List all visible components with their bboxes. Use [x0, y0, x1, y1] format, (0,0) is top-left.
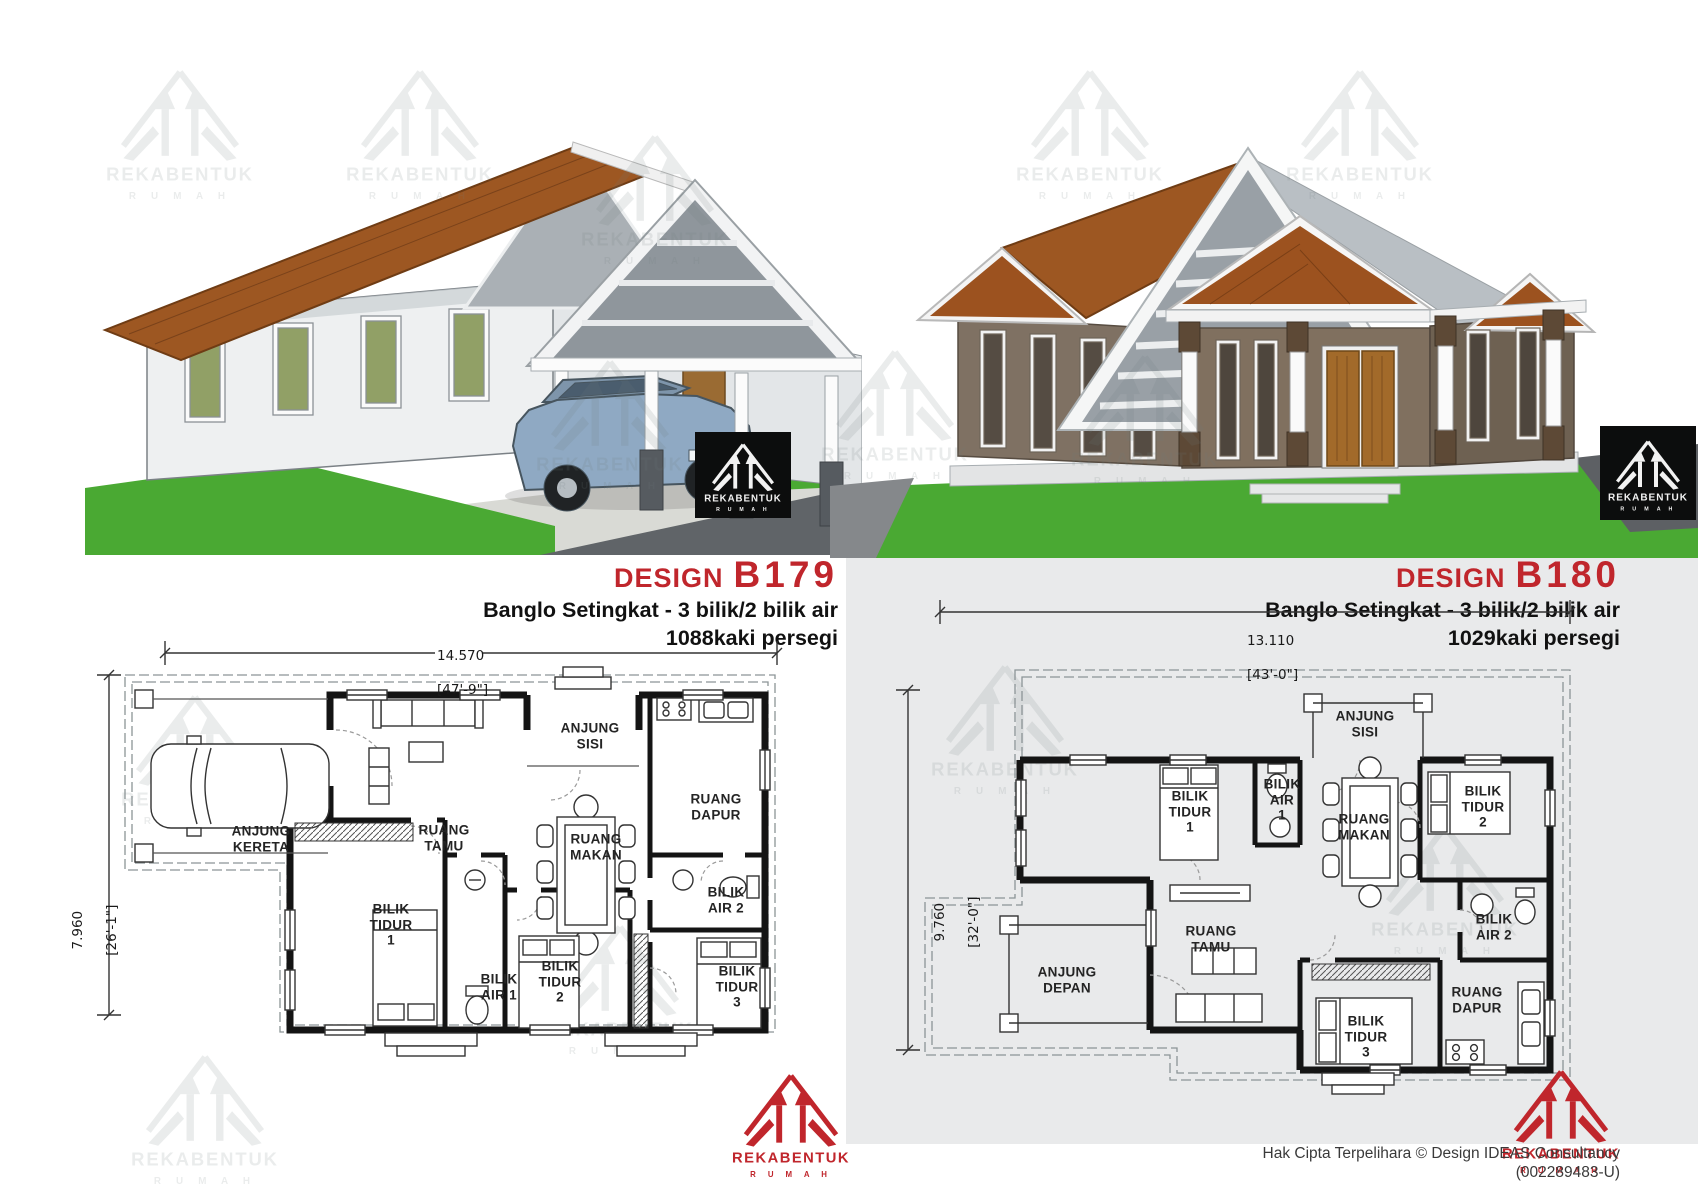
- b180-plate-logo: [1608, 429, 1688, 517]
- b179-dim-left-m: 7.960: [70, 885, 87, 975]
- b179-dim-top-ft: [47'-9"]: [437, 682, 488, 699]
- brand-watermark: [1285, 50, 1435, 210]
- b179-kitchen-fixtures: [657, 698, 753, 722]
- b179-dim-top: 14.570 [47'-9"]: [437, 631, 488, 715]
- room-label-b180-bilik-tidur-2: BILIK TIDUR 2: [1462, 784, 1505, 831]
- b179-footer-logo: [732, 1058, 850, 1186]
- brand-watermark: [1070, 335, 1220, 495]
- b179-wardrobe: [295, 823, 413, 841]
- room-label-b180-ruang-dapur: RUANG DAPUR: [1452, 984, 1503, 1015]
- b179-steps: [385, 1033, 697, 1056]
- brand-watermark: [105, 50, 255, 210]
- b180-front-door: [1322, 346, 1398, 468]
- poster-canvas: REKABENTUK R U M A H: [0, 0, 1698, 1200]
- b179-dim-left: 7.960 [26'-1"]: [53, 885, 137, 975]
- b179-dim-left-ft: [26'-1"]: [103, 885, 120, 975]
- brand-watermark: [580, 115, 730, 275]
- brand-watermark: [535, 340, 685, 500]
- room-label-b180-ruang-makan: RUANG MAKAN: [1338, 811, 1390, 842]
- room-label-b180-anjung-depan: ANJUNG DEPAN: [1038, 964, 1097, 995]
- b179-dim-top-m: 14.570: [437, 648, 488, 665]
- b179-plan-car: [151, 736, 329, 836]
- room-label-ruang-dapur: RUANG DAPUR: [691, 791, 742, 822]
- b180-dim-top-ft: [43'-0"]: [1247, 667, 1298, 684]
- copyright-notice: Hak Cipta Terpelihara © Design IDEAS Con…: [1060, 1144, 1620, 1183]
- room-label-ruang-tamu: RUANG TAMU: [419, 822, 470, 853]
- copyright-line1: Hak Cipta Terpelihara © Design IDEAS Con…: [1060, 1144, 1620, 1163]
- b179-brand-plate: [695, 432, 791, 518]
- room-label-anjung-kereta: ANJUNG KERETA: [232, 823, 291, 854]
- room-label-anjung-sisi: ANJUNG SISI: [561, 720, 620, 751]
- b179-plate-logo: [704, 433, 782, 517]
- brand-watermark: [1015, 50, 1165, 210]
- room-label-bilik-air-2: BILIK AIR 2: [708, 884, 745, 915]
- b180-dim-top-m: 13.110: [1247, 633, 1298, 650]
- b180-brand-plate: [1600, 426, 1696, 520]
- room-label-bilik-tidur-3: BILIK TIDUR 3: [716, 964, 759, 1011]
- b180-dim-left-ft: [32'-0"]: [965, 877, 982, 967]
- b180-steps: [1322, 1073, 1394, 1094]
- b180-floor-plan: [870, 580, 1590, 1100]
- copyright-line2: (002289483-U): [1060, 1163, 1620, 1182]
- b179-wardrobe-2: [634, 934, 648, 1028]
- b180-wardrobe-3: [1312, 964, 1430, 980]
- room-label-bilik-air-1: BILIK AIR 1: [481, 971, 518, 1002]
- brand-watermark: [345, 50, 495, 210]
- b180-dim-left-m: 9.760: [932, 877, 949, 967]
- room-label-bilik-tidur-1: BILIK TIDUR 1: [370, 902, 413, 949]
- room-label-b180-bilik-air-2: BILIK AIR 2: [1476, 911, 1513, 942]
- b180-dim-top: 13.110 [43'-0"]: [1247, 616, 1298, 700]
- room-label-b180-anjung-sisi: ANJUNG SISI: [1336, 708, 1395, 739]
- b180-dim-left: 9.760 [32'-0"]: [915, 877, 999, 967]
- room-label-b180-bilik-air-1: BILIK AIR 1: [1264, 777, 1301, 824]
- room-label-ruang-makan: RUANG MAKAN: [570, 831, 622, 862]
- b179-dining-table: [537, 795, 635, 955]
- room-label-b180-bilik-tidur-3: BILIK TIDUR 3: [1345, 1014, 1388, 1061]
- room-label-bilik-tidur-2: BILIK TIDUR 2: [539, 959, 582, 1006]
- brand-watermark: [820, 330, 970, 490]
- room-label-b180-ruang-tamu: RUANG TAMU: [1186, 923, 1237, 954]
- room-label-b180-bilik-tidur-1: BILIK TIDUR 1: [1169, 789, 1212, 836]
